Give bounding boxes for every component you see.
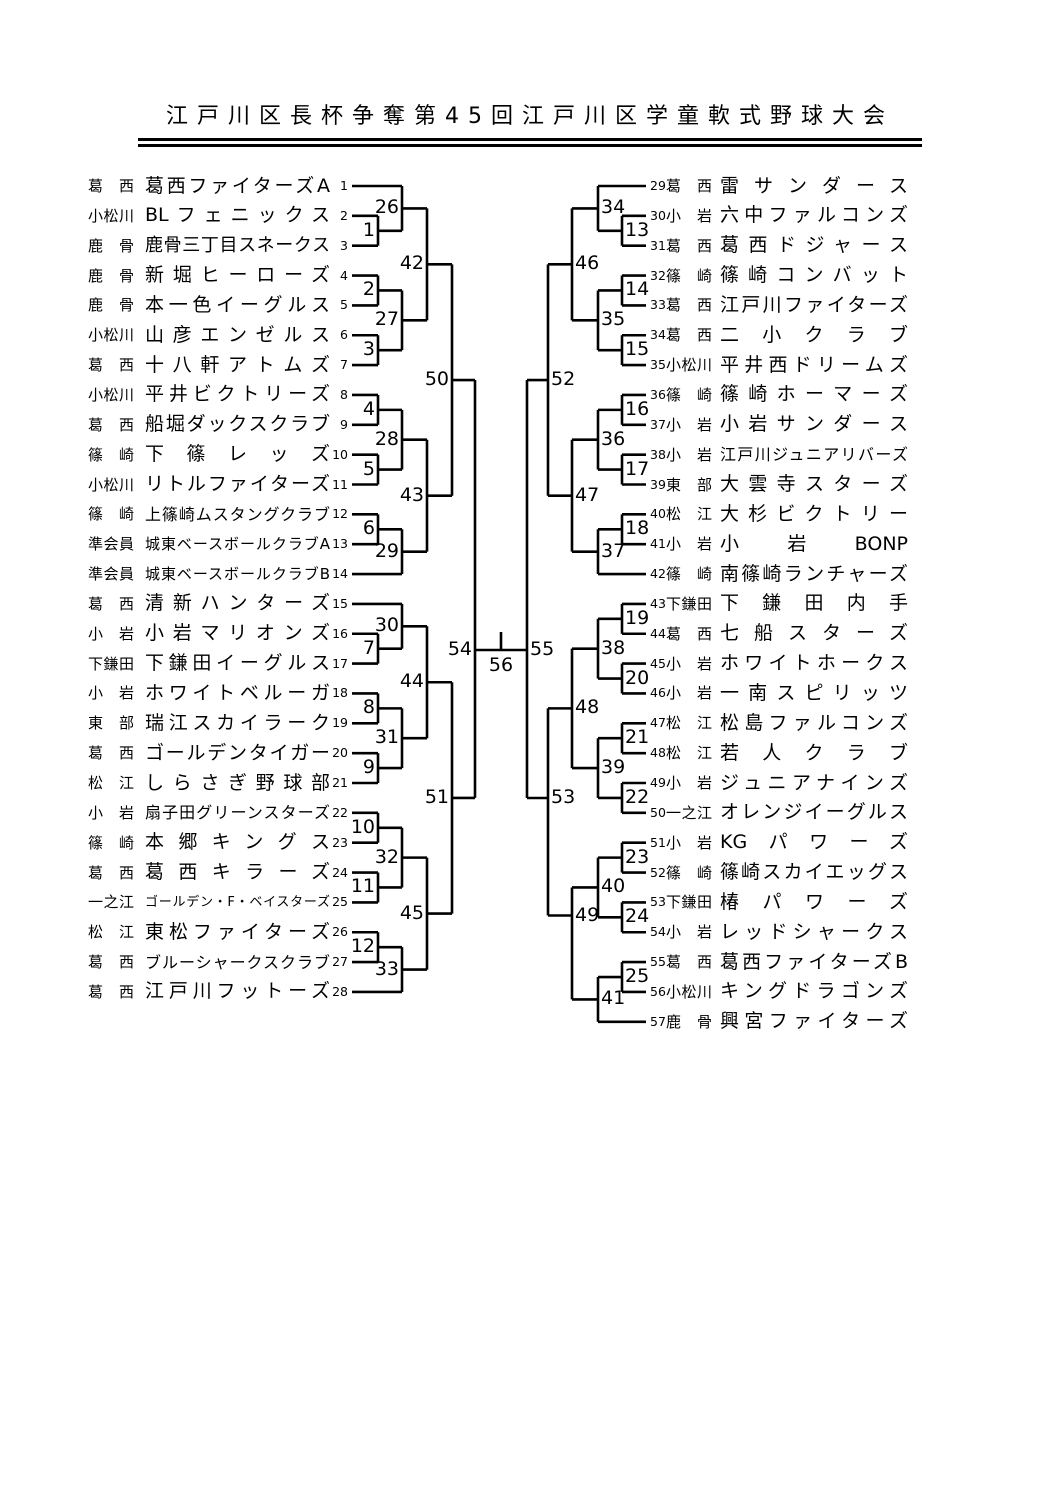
team-region: 鹿骨 — [88, 236, 134, 256]
team-name: 扇子田グリーンスターズ — [145, 802, 330, 823]
team-region: 葛西 — [88, 863, 134, 883]
match-number: 38 — [601, 638, 635, 659]
match-number: 13 — [625, 220, 659, 241]
match-number: 9 — [341, 757, 375, 778]
match-number: 49 — [575, 905, 609, 926]
team-region: 小岩 — [666, 922, 712, 942]
match-number: 5 — [341, 459, 375, 480]
team-name: 瑞江スカイラーク — [145, 713, 330, 734]
match-number: 25 — [625, 966, 659, 987]
match-number: 47 — [575, 485, 609, 506]
match-number: 52 — [551, 369, 585, 390]
team-region: 一之江 — [666, 803, 712, 823]
match-number: 40 — [601, 876, 635, 897]
team-region: 小岩 — [666, 415, 712, 435]
match-number: 1 — [341, 220, 375, 241]
match-number: 37 — [601, 541, 635, 562]
team-region: 小松川 — [88, 206, 134, 226]
team-name: 下鎌田イーグルス — [145, 653, 330, 674]
match-number: 20 — [625, 668, 659, 689]
team-region: 一之江 — [88, 892, 134, 912]
team-region: 篠崎 — [88, 504, 134, 524]
match-number: 7 — [341, 638, 375, 659]
team-region: 東部 — [88, 713, 134, 733]
team-name: 篠崎コンバット — [720, 265, 908, 286]
match-number: 19 — [625, 608, 659, 629]
team-seed: 14 — [330, 567, 348, 581]
team-region: 篠崎 — [666, 863, 712, 883]
match-number: 23 — [625, 847, 659, 868]
match-number: 31 — [365, 727, 399, 748]
team-name: 清新ハンターズ — [145, 593, 330, 614]
team-name: 雷サンダース — [720, 176, 908, 197]
team-region: 小岩 — [88, 624, 134, 644]
team-name: 江戸川ジュニアリバーズ — [720, 444, 908, 465]
team-region: 葛西 — [88, 176, 134, 196]
match-number: 24 — [625, 906, 659, 927]
match-number: 33 — [365, 959, 399, 980]
team-region: 葛西 — [666, 325, 712, 345]
team-name: 篠崎ホーマーズ — [720, 384, 908, 405]
team-name: ゴールデンタイガー — [145, 743, 330, 764]
team-name: 七船スターズ — [720, 623, 908, 644]
match-number: 3 — [341, 339, 375, 360]
team-region: 松江 — [88, 922, 134, 942]
match-number: 42 — [390, 253, 424, 274]
match-number: 34 — [601, 197, 635, 218]
team-region: 松江 — [88, 773, 134, 793]
team-name: 本郷キングス — [145, 832, 330, 853]
team-name: 船堀ダックスクラブ — [145, 414, 330, 435]
team-region: 葛西 — [88, 594, 134, 614]
match-number: 44 — [390, 671, 424, 692]
team-name: 葛西ファイターズA — [145, 176, 330, 197]
team-region: 篠崎 — [88, 445, 134, 465]
match-number: 35 — [601, 309, 635, 330]
team-region: 小岩 — [666, 534, 712, 554]
match-number: 51 — [415, 787, 449, 808]
team-region: 松江 — [666, 713, 712, 733]
team-name: ブルーシャークスクラブ — [145, 952, 330, 973]
team-region: 松江 — [666, 743, 712, 763]
team-region: 葛西 — [666, 176, 712, 196]
team-name: 松島ファルコンズ — [720, 713, 908, 734]
team-region: 小岩 — [88, 803, 134, 823]
team-name: 二小クラブ — [720, 325, 908, 346]
team-name: 城東ベースボールクラブA — [145, 534, 330, 555]
team-name: 南篠崎ランチャーズ — [720, 564, 908, 585]
team-name: 鹿骨三丁目スネークス — [145, 235, 330, 256]
team-name: ホワイトベルーガ — [145, 683, 330, 704]
team-region: 篠崎 — [666, 385, 712, 405]
team-region: 小松川 — [88, 385, 134, 405]
team-region: 準会員 — [88, 564, 134, 584]
team-name: ジュニアナインズ — [720, 773, 908, 794]
team-name: 椿パワーズ — [720, 892, 908, 913]
match-number: 10 — [341, 817, 375, 838]
team-region: 小松川 — [666, 982, 712, 1002]
match-number: 50 — [415, 369, 449, 390]
team-region: 葛西 — [88, 355, 134, 375]
team-name: 平井西ドリームズ — [720, 355, 908, 376]
match-number: 46 — [575, 253, 609, 274]
team-name: BLフェニックス — [145, 205, 330, 226]
team-name: 十八軒アトムズ — [145, 355, 330, 376]
team-region: 小岩 — [666, 683, 712, 703]
team-seed: 7 — [330, 358, 348, 372]
match-number: 18 — [625, 518, 659, 539]
team-seed: 11 — [330, 478, 348, 492]
team-name: 興宮ファイターズ — [720, 1011, 908, 1032]
tournament-bracket-page: 江戸川区長杯争奪第45回江戸川区学童軟式野球大会 葛西葛西ファイターズA1小松川… — [0, 0, 1058, 1497]
match-number: 41 — [601, 988, 635, 1009]
team-region: 東部 — [666, 475, 712, 495]
team-region: 葛西 — [666, 624, 712, 644]
match-number: 11 — [341, 876, 375, 897]
team-region: 篠崎 — [666, 266, 712, 286]
match-number: 39 — [601, 757, 635, 778]
team-name: ホワイトホークス — [720, 653, 908, 674]
team-name: 山彦エンゼルス — [145, 325, 330, 346]
team-region: 小岩 — [666, 833, 712, 853]
team-name: ゴールデン・F・ベイスターズ — [145, 892, 330, 913]
team-region: 小岩 — [666, 654, 712, 674]
team-region: 下鎌田 — [88, 654, 134, 674]
team-name: 本一色イーグルス — [145, 295, 330, 316]
match-number: 8 — [341, 697, 375, 718]
match-number: 6 — [341, 518, 375, 539]
team-region: 葛西 — [666, 295, 712, 315]
team-name: リトルファイターズ — [145, 474, 330, 495]
team-region: 小松川 — [88, 475, 134, 495]
team-region: 小岩 — [666, 773, 712, 793]
team-name: 大杉ビクトリー — [720, 504, 908, 525]
team-seed: 13 — [330, 537, 348, 551]
match-number: 32 — [365, 847, 399, 868]
team-name: 葛西キラーズ — [145, 862, 330, 883]
match-number: 14 — [625, 279, 659, 300]
team-name: 小岩BONP — [720, 534, 908, 555]
team-name: 東松ファイターズ — [145, 922, 330, 943]
team-name: KGパワーズ — [720, 832, 908, 853]
team-region: 鹿骨 — [666, 1012, 712, 1032]
team-region: 小岩 — [88, 683, 134, 703]
team-region: 葛西 — [88, 743, 134, 763]
team-name: 城東ベースボールクラブB — [145, 564, 330, 585]
team-seed: 21 — [330, 776, 348, 790]
team-region: 葛西 — [88, 982, 134, 1002]
team-seed: 3 — [330, 239, 348, 253]
team-name: 一南スピリッツ — [720, 683, 908, 704]
team-name: 六中ファルコンズ — [720, 205, 908, 226]
team-name: キングドラゴンズ — [720, 981, 908, 1002]
team-name: レッドシャークス — [720, 922, 908, 943]
match-number: 28 — [365, 429, 399, 450]
team-region: 葛西 — [88, 952, 134, 972]
team-name: 平井ビクトリーズ — [145, 384, 330, 405]
match-number: 53 — [551, 787, 585, 808]
team-name: 小岩サンダース — [720, 414, 908, 435]
team-region: 鹿骨 — [88, 266, 134, 286]
team-name: 新堀ヒーローズ — [145, 265, 330, 286]
match-number: 48 — [575, 697, 609, 718]
team-seed: 17 — [330, 657, 348, 671]
match-number: 55 — [530, 639, 564, 660]
team-region: 鹿骨 — [88, 295, 134, 315]
match-number: 36 — [601, 429, 635, 450]
team-region: 小松川 — [666, 355, 712, 375]
team-name: オレンジイーグルス — [720, 802, 908, 823]
team-name: 江戸川フットーズ — [145, 981, 330, 1002]
team-seed: 23 — [330, 836, 348, 850]
team-name: 下鎌田内手 — [720, 593, 908, 614]
match-number: 15 — [625, 339, 659, 360]
match-number: 43 — [390, 485, 424, 506]
team-seed: 15 — [330, 597, 348, 611]
team-name: 若人クラブ — [720, 743, 908, 764]
match-number: 54 — [438, 639, 472, 660]
team-seed: 5 — [330, 298, 348, 312]
match-number: 21 — [625, 727, 659, 748]
team-seed: 1 — [330, 179, 348, 193]
team-name: しらさぎ野球部 — [145, 773, 330, 794]
team-name: 葛西ドジャース — [720, 235, 908, 256]
team-name: 篠崎スカイエッグス — [720, 862, 908, 883]
team-region: 篠崎 — [88, 833, 134, 853]
match-number: 4 — [341, 399, 375, 420]
team-seed: 25 — [330, 895, 348, 909]
team-region: 小岩 — [666, 206, 712, 226]
team-name: 江戸川ファイターズ — [720, 295, 908, 316]
team-region: 小岩 — [666, 445, 712, 465]
match-number: 29 — [365, 541, 399, 562]
team-seed: 9 — [330, 418, 348, 432]
team-region: 小松川 — [88, 325, 134, 345]
match-number: 30 — [365, 615, 399, 636]
match-number: 27 — [365, 309, 399, 330]
team-seed: 27 — [330, 955, 348, 969]
team-region: 葛西 — [666, 236, 712, 256]
match-number: 12 — [341, 936, 375, 957]
match-number: 56 — [481, 655, 521, 676]
team-region: 葛西 — [88, 415, 134, 435]
match-number: 2 — [341, 279, 375, 300]
team-name: 下篠レッズ — [145, 444, 330, 465]
team-name: 小岩マリオンズ — [145, 623, 330, 644]
team-name: 葛西ファイターズB — [720, 952, 908, 973]
team-seed: 28 — [330, 985, 348, 999]
match-number: 22 — [625, 787, 659, 808]
team-region: 準会員 — [88, 534, 134, 554]
team-name: 大雲寺スターズ — [720, 474, 908, 495]
team-region: 松江 — [666, 504, 712, 524]
team-region: 篠崎 — [666, 564, 712, 584]
match-number: 26 — [365, 197, 399, 218]
team-region: 下鎌田 — [666, 892, 712, 912]
match-number: 45 — [390, 903, 424, 924]
team-region: 葛西 — [666, 952, 712, 972]
match-number: 17 — [625, 459, 659, 480]
team-seed: 19 — [330, 716, 348, 730]
team-name: 上篠崎ムスタングクラブ — [145, 504, 330, 525]
match-number: 16 — [625, 399, 659, 420]
team-region: 下鎌田 — [666, 594, 712, 614]
